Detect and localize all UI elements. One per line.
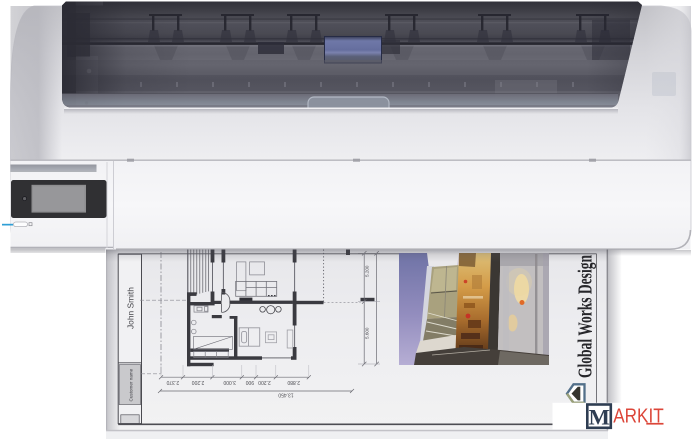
svg-text:2.200: 2.200: [192, 379, 205, 385]
svg-text:3.000: 3.000: [223, 379, 236, 385]
svg-text:900: 900: [246, 379, 255, 385]
svg-text:13.450: 13.450: [278, 391, 294, 397]
svg-text:M: M: [589, 405, 610, 430]
svg-text:Global Works Design: Global Works Design: [574, 255, 596, 378]
svg-text:2.370: 2.370: [166, 379, 179, 385]
svg-text:Customer name: Customer name: [129, 368, 134, 401]
svg-text:2.200: 2.200: [258, 379, 271, 385]
svg-text:John Smith: John Smith: [125, 287, 135, 329]
svg-text:5.200: 5.200: [365, 265, 370, 277]
svg-text:5.600: 5.600: [365, 327, 370, 339]
svg-text:2.880: 2.880: [287, 379, 300, 385]
